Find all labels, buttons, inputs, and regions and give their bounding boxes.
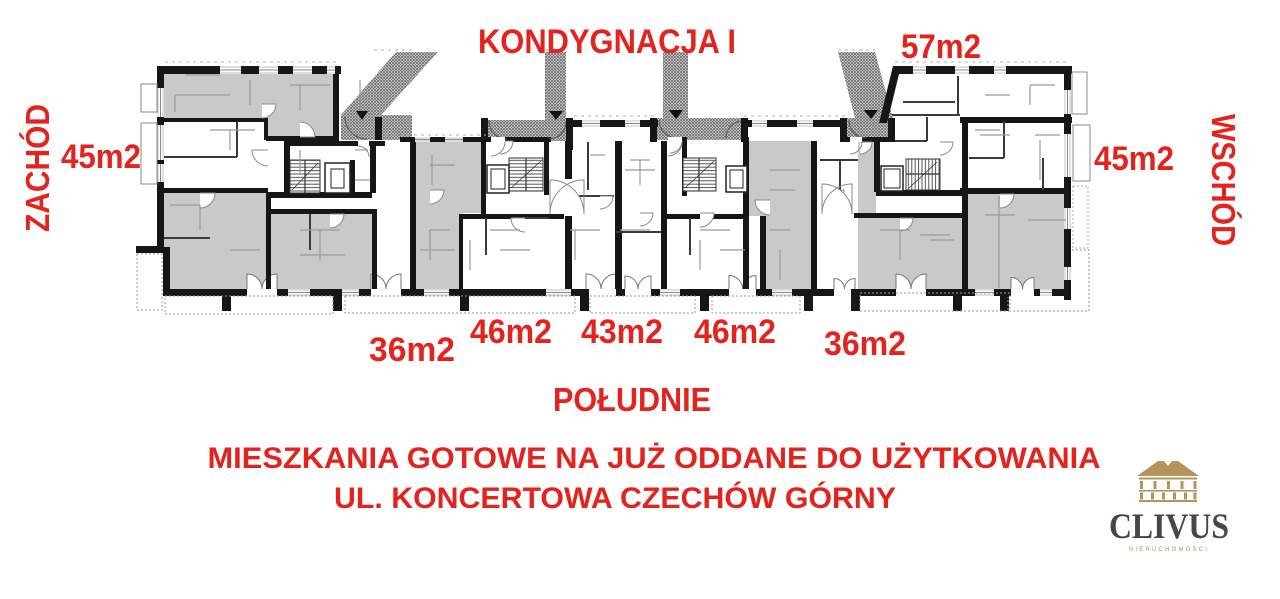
svg-text:46m2: 46m2 bbox=[470, 313, 552, 351]
svg-text:UL. KONCERTOWA CZECHÓW GÓRNY: UL. KONCERTOWA CZECHÓW GÓRNY bbox=[334, 481, 896, 515]
svg-text:CLIVUS: CLIVUS bbox=[1109, 506, 1229, 546]
svg-text:57m2: 57m2 bbox=[901, 28, 981, 66]
svg-text:36m2: 36m2 bbox=[369, 331, 455, 369]
svg-text:46m2: 46m2 bbox=[694, 313, 776, 351]
svg-text:KONDYGNACJA I: KONDYGNACJA I bbox=[478, 23, 736, 61]
svg-text:43m2: 43m2 bbox=[581, 313, 663, 351]
svg-text:ZACHÓD: ZACHÓD bbox=[19, 104, 56, 232]
svg-text:36m2: 36m2 bbox=[824, 325, 906, 363]
svg-text:NIERUCHOMOŚCI: NIERUCHOMOŚCI bbox=[1129, 545, 1209, 553]
svg-text:45m2: 45m2 bbox=[1094, 140, 1174, 178]
svg-text:45m2: 45m2 bbox=[61, 138, 141, 176]
svg-text:WSCHÓD: WSCHÓD bbox=[1205, 114, 1242, 246]
svg-text:MIESZKANIA GOTOWE NA JUŻ ODDAN: MIESZKANIA GOTOWE NA JUŻ ODDANE DO UŻYTK… bbox=[208, 442, 1101, 475]
svg-text:POŁUDNIE: POŁUDNIE bbox=[553, 381, 711, 418]
